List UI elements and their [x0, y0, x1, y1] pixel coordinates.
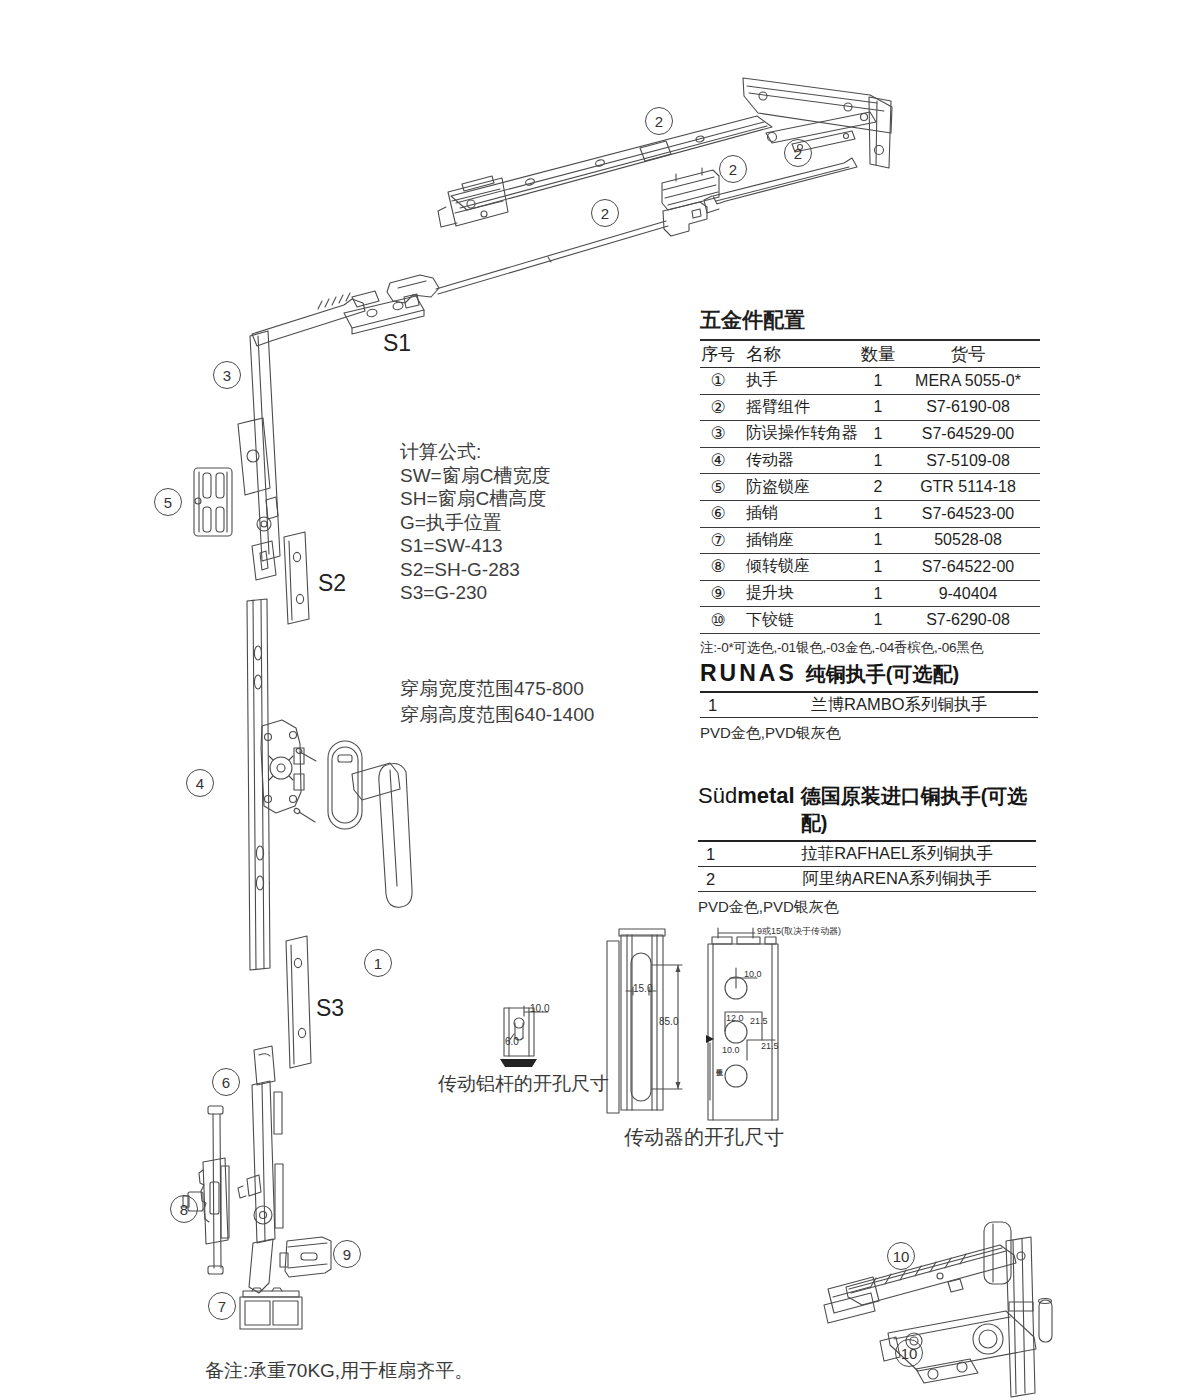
dim-rod-width: 10.0: [530, 1003, 549, 1014]
table-row: ⑦插销座150528-08: [700, 528, 1040, 555]
label-s3: S3: [316, 995, 344, 1022]
dim-slot-width: 15.0: [633, 983, 652, 994]
color-options-note: 注:-0*可选色,-01银色,-03金色,-04香槟色,-06黑色: [700, 639, 1040, 657]
formula-block: 计算公式: SW=窗扇C槽宽度 SH=窗扇C槽高度 G=执手位置 S1=SW-4…: [400, 440, 550, 605]
runas-logo: RUNAS: [700, 660, 797, 687]
table-row: ①执手1MERA 5055-0*: [700, 368, 1040, 395]
formula-title: 计算公式:: [400, 440, 550, 464]
runas-header: RUNAS 纯铜执手(可选配): [700, 660, 1038, 693]
hardware-table: 五金件配置 序号 名称 数量 货号 ①执手1MERA 5055-0* ②摇臂组件…: [700, 306, 1040, 657]
dim-frame-d5: 10.0: [722, 1045, 740, 1055]
sudmetal-header: Südmetal 德国原装进口铜执手(可选配): [698, 783, 1036, 842]
sudmetal-row: 1 拉菲RAFHAEL系列铜执手: [698, 842, 1036, 867]
callout-3: 3: [213, 361, 241, 389]
col-header-name: 名称: [736, 342, 860, 366]
sudmetal-finish-note: PVD金色,PVD银灰色: [698, 898, 1036, 917]
part9-lift-block: [280, 1237, 331, 1277]
runas-row: 1 兰博RAMBO系列铜执手: [700, 693, 1038, 718]
footnote: 备注:承重70KG,用于框扇齐平。: [205, 1358, 473, 1384]
hardware-table-title: 五金件配置: [700, 306, 1040, 341]
part10-bottom-hinge: [824, 1222, 1052, 1397]
formula-line: S3=G-230: [400, 581, 550, 605]
dim-slot-height: 85.0: [659, 1016, 678, 1027]
table-row: ⑨提升块19-40404: [700, 581, 1040, 608]
handle-screws: [293, 748, 316, 822]
part6-shoot-bolt: [238, 1046, 283, 1293]
dim-frame-d2: 12.0: [726, 1013, 744, 1023]
plate-s1: [344, 296, 424, 334]
table-row: ④传动器1S7-5109-08: [700, 448, 1040, 475]
formula-line: S2=SH-G-283: [400, 558, 550, 582]
col-header-sku: 货号: [896, 342, 1040, 366]
table-row: ⑧倾转锁座1S7-64522-00: [700, 554, 1040, 581]
rod-hole-caption: 传动铝杆的开孔尺寸: [438, 1071, 609, 1097]
dim-frame-top: 9或15(取决于传动器): [757, 925, 841, 938]
col-header-qty: 数量: [860, 342, 896, 366]
part8-tilt-lock-keeper: [183, 1106, 229, 1274]
formula-line: G=执手位置: [400, 511, 550, 535]
range-block: 穿扇宽度范围475-800 穿扇高度范围640-1400: [400, 676, 594, 728]
callout-2-strip: 2: [784, 139, 812, 167]
plate-s2: [284, 532, 309, 624]
formula-line: SH=窗扇C槽高度: [400, 487, 550, 511]
sash-height-range: 穿扇高度范围640-1400: [400, 702, 594, 728]
table-row: ⑥插销1S7-64523-00: [700, 501, 1040, 528]
label-s2: S2: [318, 570, 346, 597]
callout-5: 5: [154, 488, 182, 516]
table-row: ⑤防盗锁座2GTR 5114-18: [700, 474, 1040, 501]
runas-title: 纯铜执手(可选配): [806, 661, 959, 688]
gear-hole-caption: 传动器的开孔尺寸: [624, 1124, 784, 1151]
part7-bolt-keeper: [240, 1288, 302, 1329]
callout-1: 1: [364, 949, 392, 977]
table-row: ⑩下铰链1S7-6290-08: [700, 607, 1040, 634]
sash-width-range: 穿扇宽度范围475-800: [400, 676, 594, 702]
formula-line: SW=窗扇C槽宽度: [400, 464, 550, 488]
callout-10-upper: 10: [887, 1242, 915, 1270]
dim-frame-d1: 10.0: [744, 969, 762, 979]
callout-4: 4: [186, 769, 214, 797]
formula-line: S1=SW-413: [400, 534, 550, 558]
part1-handle: [328, 741, 412, 907]
part2-corner-bracket: [743, 78, 892, 168]
callout-9: 9: [333, 1240, 361, 1268]
callout-8: 8: [170, 1195, 198, 1223]
part2-glide-block: [662, 168, 719, 210]
page: 2 2 2 2 3 5 4 1 6 8 9 7 10 10 S1 S2 S3 计…: [0, 0, 1200, 1400]
callout-6: 6: [212, 1068, 240, 1096]
sudmetal-row: 2 阿里纳ARENA系列铜执手: [698, 867, 1036, 892]
plate-s3: [286, 936, 311, 1068]
dim-frame-d3: 21.5: [750, 1016, 768, 1026]
table-row: ②摇臂组件1S7-6190-08: [700, 395, 1040, 422]
dim-rod-height: 6.0: [505, 1036, 519, 1047]
callout-2-rail: 2: [645, 107, 673, 135]
part4-drive-gear: [247, 599, 304, 970]
dim-frame-d4: 21.5: [761, 1041, 779, 1051]
col-header-index: 序号: [700, 343, 736, 366]
runas-section: RUNAS 纯铜执手(可选配) 1 兰博RAMBO系列铜执手 PVD金色,PVD…: [700, 660, 1038, 743]
sudmetal-title: 德国原装进口铜执手(可选配): [801, 783, 1036, 837]
label-s1: S1: [383, 330, 411, 357]
table-row: ③防误操作转角器1S7-64529-00: [700, 421, 1040, 448]
sudmetal-section: Südmetal 德国原装进口铜执手(可选配) 1 拉菲RAFHAEL系列铜执手…: [698, 783, 1036, 917]
callout-2-block: 2: [719, 155, 747, 183]
part3-corner-drive: [238, 291, 379, 580]
hardware-table-header: 序号 名称 数量 货号: [700, 341, 1040, 368]
part2-drive-rod: [387, 202, 707, 308]
sudmetal-logo: Südmetal: [698, 783, 795, 809]
callout-7: 7: [208, 1292, 236, 1320]
callout-10-lower: 10: [895, 1339, 923, 1367]
runas-finish-note: PVD金色,PVD银灰色: [700, 724, 1038, 743]
part5-lock-keeper: [194, 468, 232, 536]
callout-2-rod: 2: [591, 199, 619, 227]
